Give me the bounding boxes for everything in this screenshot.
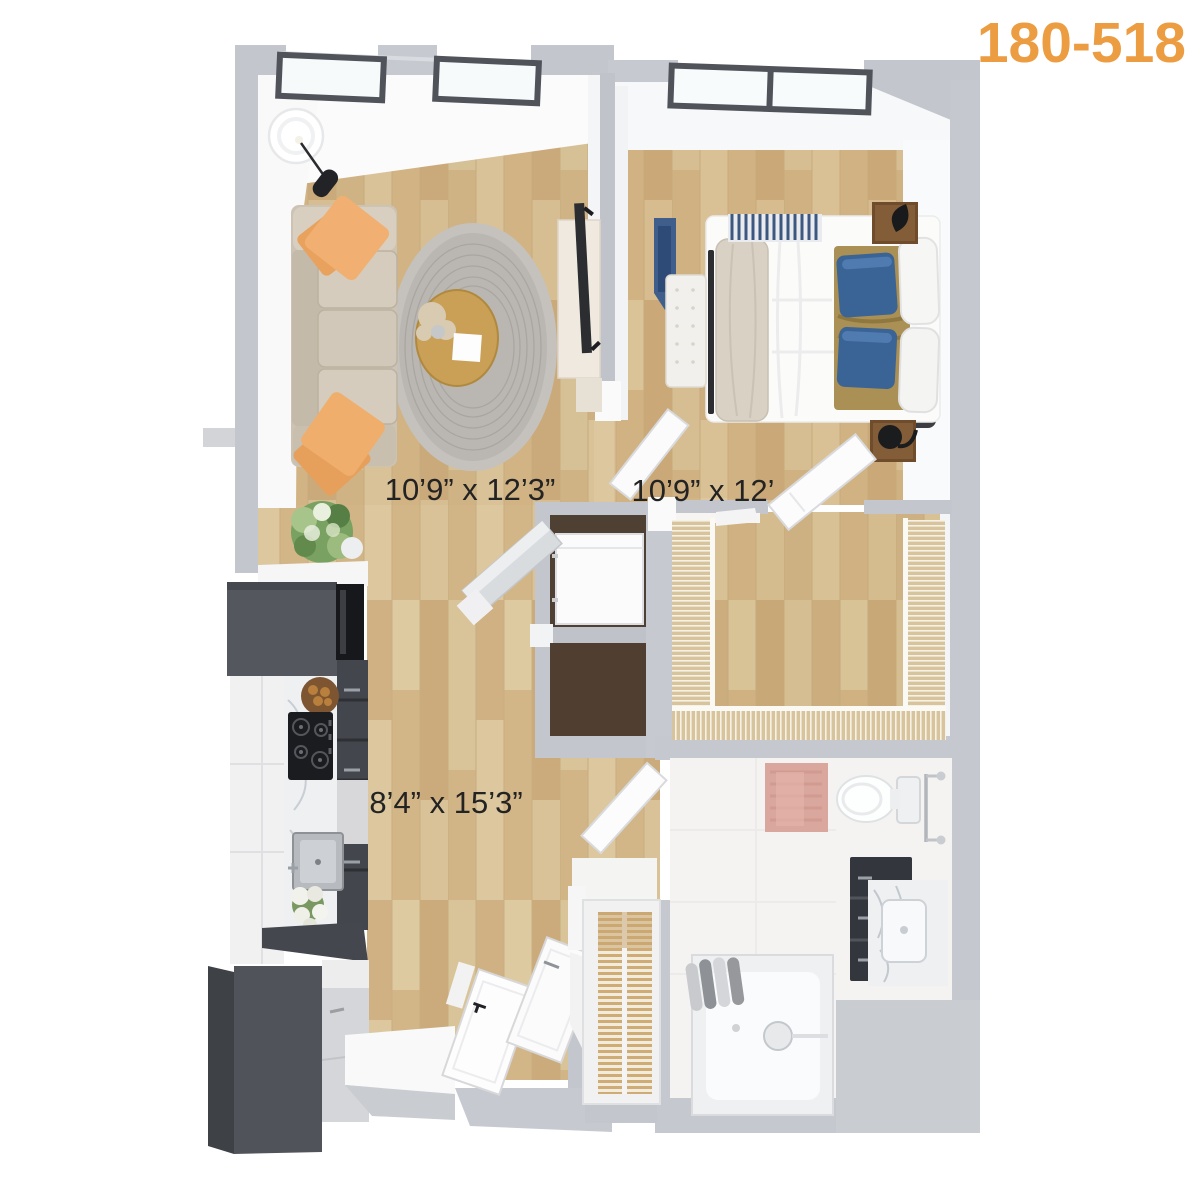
svg-text:10’9” x 12’3”: 10’9” x 12’3” bbox=[385, 472, 556, 507]
svg-text:8’4” x 15’3”: 8’4” x 15’3” bbox=[369, 785, 522, 820]
svg-text:180-518: 180-518 bbox=[977, 11, 1186, 75]
svg-text:10’9” x 12’: 10’9” x 12’ bbox=[631, 473, 774, 508]
